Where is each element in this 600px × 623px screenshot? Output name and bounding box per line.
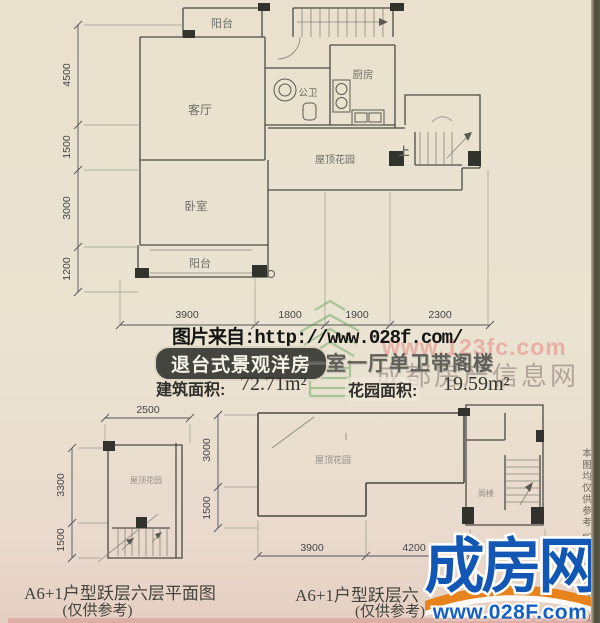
dim-left-plan-top: 2500 <box>136 404 160 416</box>
room-label-loft: 阁楼 <box>478 488 494 498</box>
banner-subtitle: 一室一厅单卫带阁楼 <box>305 347 494 376</box>
room-label-balcony-bottom: 阳台 <box>189 256 211 270</box>
logo-name: 成房网 <box>425 533 596 600</box>
room-label-bedroom: 卧室 <box>185 199 208 213</box>
plan-six-left: 2500 3300 1500 屋顶花园 <box>55 404 194 562</box>
watermark-source-url: 图片来自:http://www.028f.com/ <box>172 322 462 349</box>
dim-main-bottom-4: 2300 <box>428 309 452 321</box>
dim-main-left-3: 3000 <box>61 196 73 220</box>
room-label-kitchen: 厨房 <box>353 68 374 81</box>
built-area-label: 建筑面积: <box>156 376 225 400</box>
caption-left-note: (仅供参考) <box>40 599 155 620</box>
dim-right-plan-bottom-1: 3900 <box>300 542 324 554</box>
room-label-bath: 公卫 <box>298 88 318 99</box>
dim-main-left-4: 1200 <box>61 257 73 281</box>
main-plan: 阳台 客厅 公卫 厨房 屋顶花园 卧室 阳台 上 4500 1500 3000 … <box>61 3 494 329</box>
dim-main-left-1: 4500 <box>61 63 73 87</box>
dim-main-left-2: 1500 <box>61 135 73 159</box>
dim-left-plan-2: 1500 <box>55 528 67 552</box>
scanned-floorplan-page: 阳台 客厅 公卫 厨房 屋顶花园 卧室 阳台 上 4500 1500 3000 … <box>0 0 600 623</box>
room-label-living: 客厅 <box>188 102 212 117</box>
dim-main-bottom-3: 1900 <box>345 309 369 321</box>
room-label-left-roof-garden: 屋顶花园 <box>130 475 162 485</box>
garden-area-label: 花园面积: <box>345 377 420 401</box>
chengfangwang-logo: 成房网 www.028F.com <box>423 521 598 623</box>
dim-right-plan-left-2: 1500 <box>201 496 213 520</box>
room-label-roof-garden: 屋顶花园 <box>315 153 355 166</box>
dim-main-bottom-2: 1800 <box>278 309 302 321</box>
dim-main-bottom-1: 3900 <box>175 309 199 321</box>
room-label-balcony-top: 阳台 <box>211 16 233 30</box>
stair-up-label: 上 <box>399 144 410 158</box>
dim-left-plan-1: 3300 <box>55 473 67 497</box>
room-label-right-roof-garden: 屋顶花园 <box>315 454 351 465</box>
built-area-value: 72.71m² <box>240 373 307 396</box>
garden-area-value: 19.59m² <box>443 373 510 396</box>
scan-right-border <box>591 0 600 623</box>
scan-bottom-border <box>8 618 591 623</box>
dim-right-plan-left-1: 3000 <box>201 438 213 462</box>
